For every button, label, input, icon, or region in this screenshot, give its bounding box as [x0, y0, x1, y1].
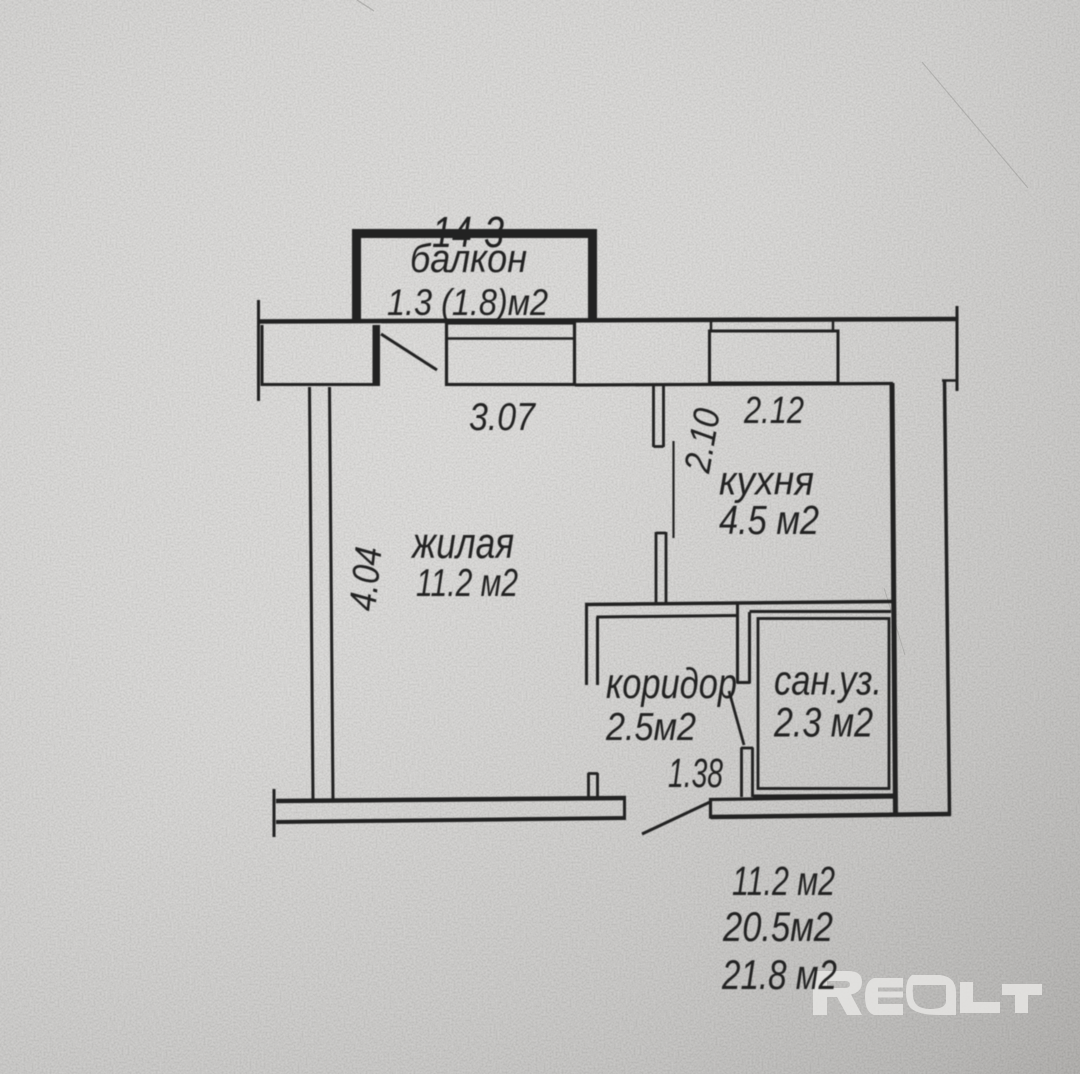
- svg-text:жилая: жилая: [410, 519, 514, 568]
- svg-text:2.12: 2.12: [743, 390, 804, 432]
- svg-text:3.07: 3.07: [469, 396, 536, 439]
- svg-text:2.5м2: 2.5м2: [605, 706, 696, 749]
- svg-text:1.38: 1.38: [668, 750, 723, 796]
- svg-text:коридор: коридор: [606, 660, 737, 708]
- svg-text:балкон: балкон: [410, 237, 527, 281]
- svg-text:4.04: 4.04: [342, 545, 390, 613]
- svg-text:4.5 м2: 4.5 м2: [719, 497, 819, 543]
- svg-text:сан.уз.: сан.уз.: [774, 657, 882, 704]
- svg-text:2.3 м2: 2.3 м2: [773, 699, 873, 746]
- svg-text:11.2 м2: 11.2 м2: [732, 858, 835, 904]
- svg-text:11.2 м2: 11.2 м2: [416, 562, 518, 605]
- svg-text:20.5м2: 20.5м2: [722, 903, 833, 950]
- svg-text:1.3 (1.8)м2: 1.3 (1.8)м2: [387, 282, 548, 323]
- svg-text:21.8 м2: 21.8 м2: [721, 951, 837, 998]
